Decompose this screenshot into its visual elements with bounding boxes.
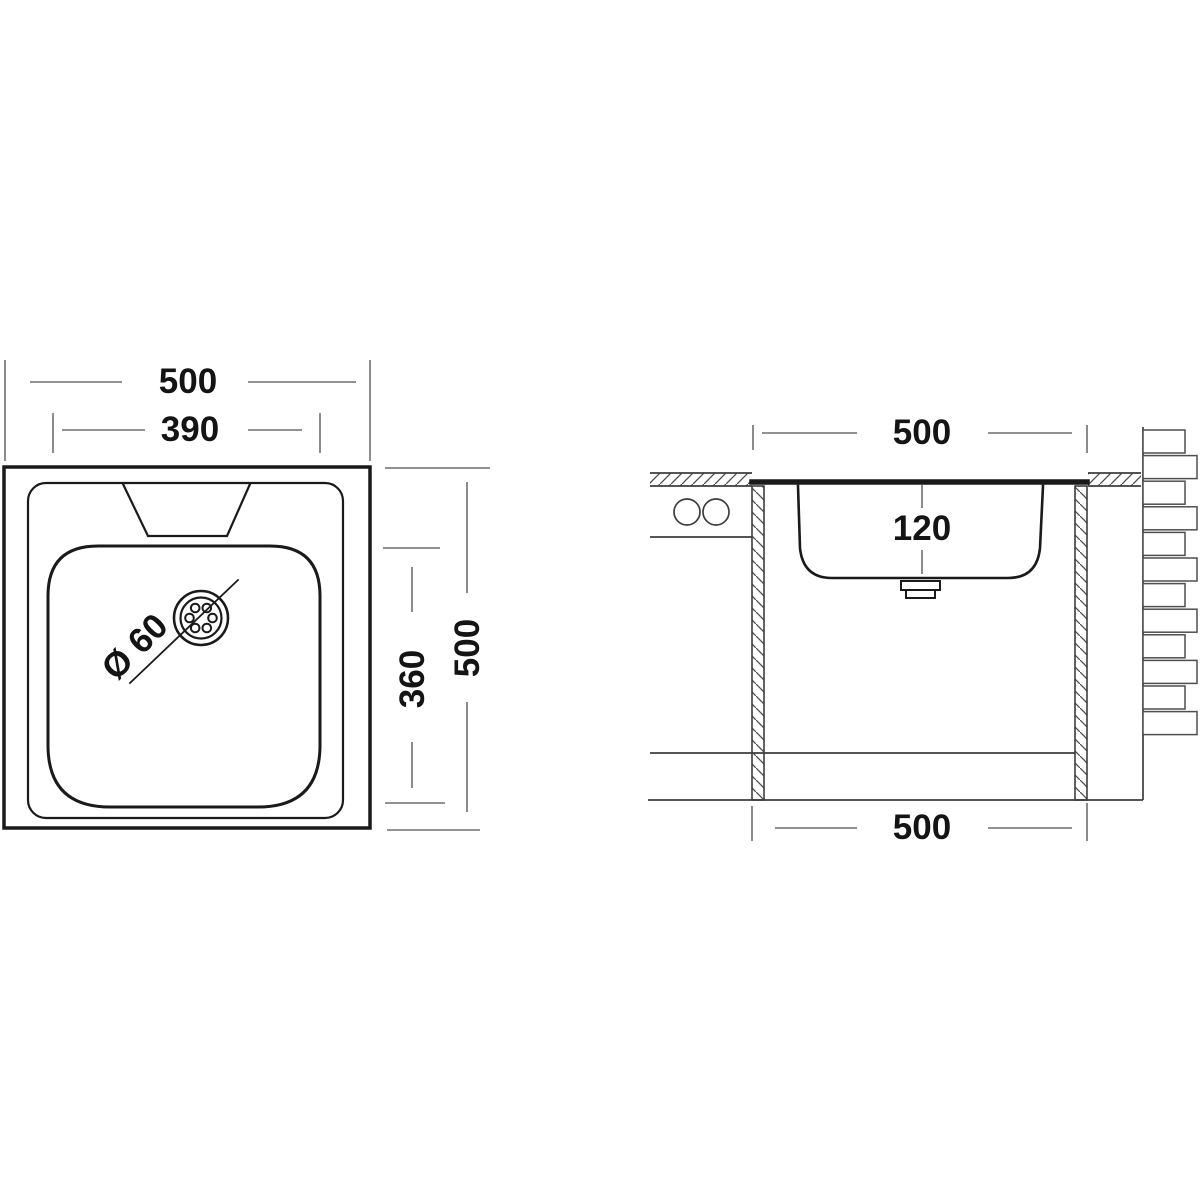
tap-ledge [123,484,250,536]
drain-hole [203,624,212,633]
brick-wall [1143,427,1197,800]
drain-inner-circle [181,598,222,639]
sink-technical-drawing: Ø 60 500 390 500 [0,0,1200,1200]
dim-bowl-width: 390 [53,410,320,453]
overall-height-label: 500 [448,619,487,677]
drain-hole [191,624,200,633]
drain-outlet [901,581,940,598]
drain: Ø 60 [94,580,238,687]
section-view: 500 120 500 [648,413,1197,847]
dim-section-bottom-width: 500 [752,803,1087,847]
drain-outlet-flange [901,581,940,590]
front-detail-circle [703,499,729,525]
drain-hole [185,614,194,623]
brick [1143,660,1197,683]
front-detail-circle [674,499,700,525]
dim-bowl-depth: 120 [893,485,951,574]
bowl-height-label: 360 [393,650,432,708]
dim-overall-height: 500 [385,468,490,830]
brick [1143,430,1185,453]
countertop-hatch [1088,473,1141,486]
bowl-width-label: 390 [161,410,219,449]
brick [1143,609,1197,632]
brick [1143,712,1197,735]
countertop-hatch [650,473,752,486]
drain-diameter-label: Ø 60 [94,606,175,687]
brick [1143,584,1185,607]
dim-section-top-width: 500 [753,413,1087,453]
brick [1143,558,1197,581]
brick [1143,686,1185,709]
bowl-depth-label: 120 [893,509,951,548]
brick [1143,635,1185,658]
brick [1143,456,1197,479]
brick [1143,481,1185,504]
countertop-right [1088,473,1141,486]
top-view: Ø 60 500 390 500 [4,360,490,830]
countertop-left [650,473,752,486]
drain-hole [208,614,217,623]
dim-bowl-height: 360 [383,548,445,803]
brick [1143,507,1197,530]
brick [1143,532,1185,555]
drawing-canvas: Ø 60 500 390 500 [0,0,1200,1200]
drain-outlet-stub [906,590,935,598]
drain-outer-circle [174,591,228,645]
sink-bowl [48,546,320,807]
section-top-width-label: 500 [893,413,951,452]
cabinet-wall-right [1075,486,1087,800]
overall-width-label: 500 [159,362,217,401]
section-bottom-width-label: 500 [893,808,951,847]
drain-hole [191,604,200,613]
sink-rim [28,483,343,818]
